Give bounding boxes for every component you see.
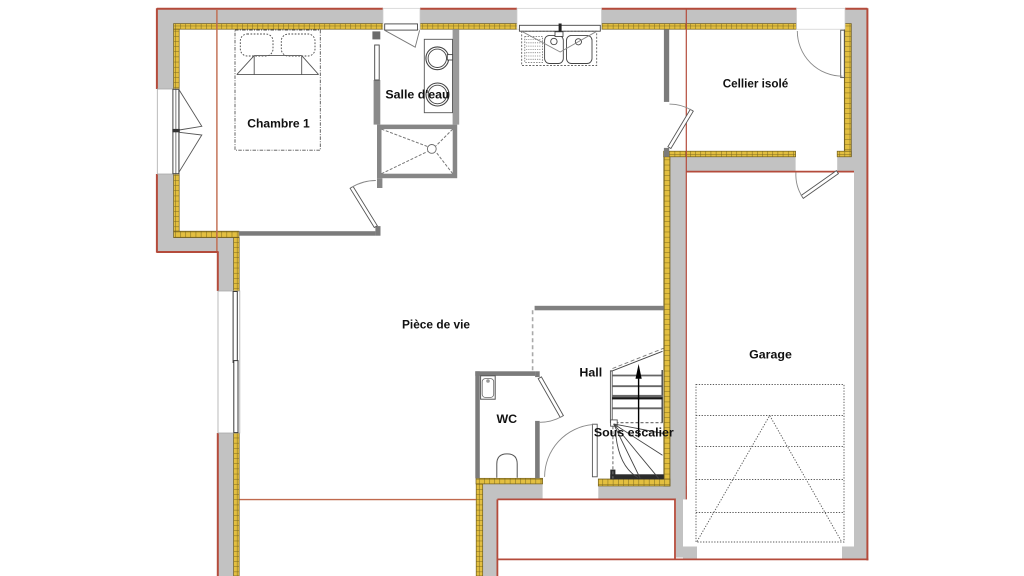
svg-text:WC: WC [496,412,517,426]
svg-text:Hall: Hall [579,366,602,380]
svg-text:Chambre 1: Chambre 1 [247,116,310,130]
svg-text:Garage: Garage [749,348,792,362]
svg-text:Pièce de vie: Pièce de vie [402,317,470,331]
svg-text:Sous escalier: Sous escalier [594,425,674,439]
svg-text:Cellier isolé: Cellier isolé [723,78,789,91]
svg-text:Salle d'eau: Salle d'eau [385,88,449,102]
